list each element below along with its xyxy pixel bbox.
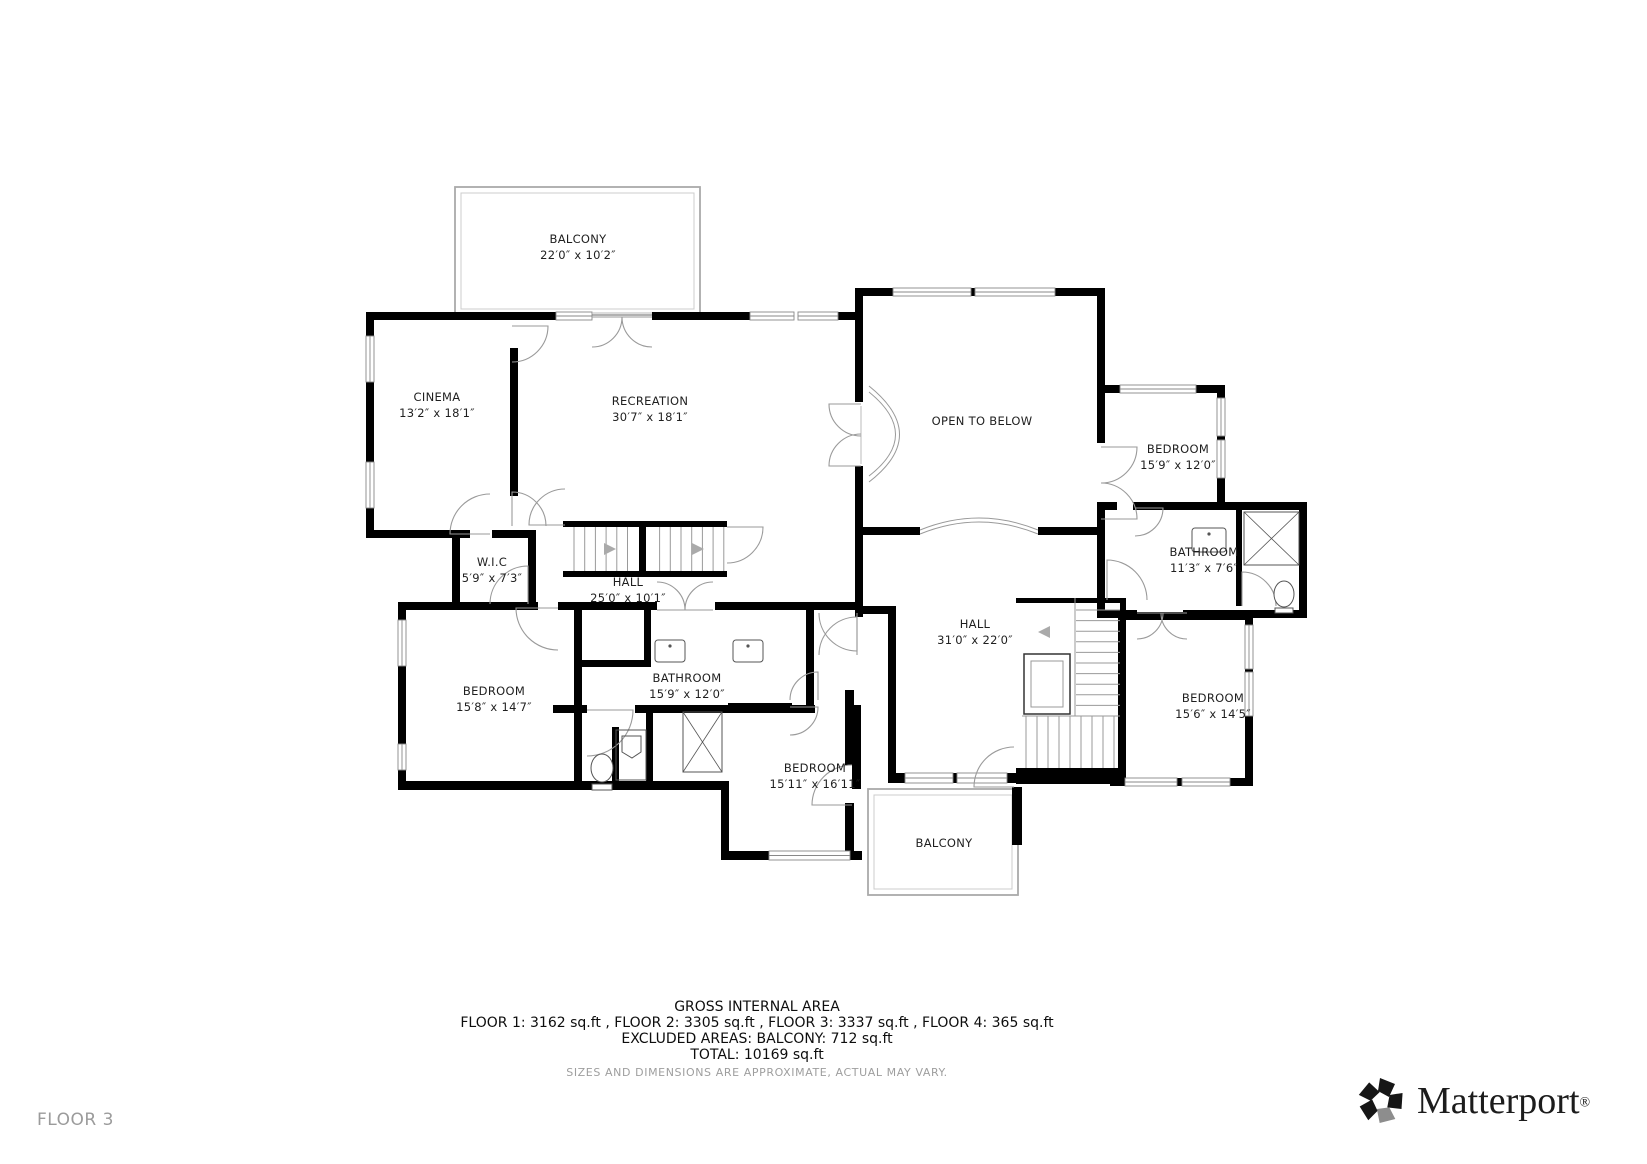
wall-opening-lines: [592, 313, 861, 464]
room-dims-bedroom-top-right: 15′9″ x 12′0″: [1140, 458, 1216, 472]
footer-total-area: TOTAL: 10169 sq.ft: [267, 1047, 1247, 1063]
room-label-bathroom-top-right: BATHROOM: [1170, 545, 1239, 559]
room-label-hall-upper: HALL: [613, 575, 644, 589]
floor-page-label: FLOOR 3: [37, 1110, 114, 1130]
gross-internal-area-footer: GROSS INTERNAL AREA FLOOR 1: 3162 sq.ft …: [267, 999, 1247, 1081]
room-dims-wic: 5′9″ x 7′3″: [462, 571, 523, 585]
matterport-pinwheel-icon: [1354, 1074, 1408, 1128]
room-dims-bedroom-bottom: 15′11″ x 16′11″: [770, 777, 861, 791]
room-dims-cinema: 13′2″ x 18′1″: [399, 406, 475, 420]
room-dims-hall-main: 31′0″ x 22′0″: [937, 633, 1013, 647]
room-label-bathroom-center: BATHROOM: [653, 671, 722, 685]
footer-floor-areas: FLOOR 1: 3162 sq.ft , FLOOR 2: 3305 sq.f…: [267, 1015, 1247, 1031]
room-label-bedroom-bottom-right: BEDROOM: [1182, 691, 1244, 705]
room-label-cinema: CINEMA: [414, 390, 461, 404]
room-label-balcony-top: BALCONY: [550, 232, 608, 246]
matterport-logo: Matterport®: [1354, 1074, 1590, 1128]
footer-title: GROSS INTERNAL AREA: [267, 999, 1247, 1015]
room-label-wic: W.I.C: [477, 555, 507, 569]
floorplan-page: { "page": {"background": "#ffffff"}, "fl…: [0, 0, 1647, 1164]
room-label-bedroom-bottom: BEDROOM: [784, 761, 846, 775]
room-dims-balcony-top: 22′0″ x 10′2″: [540, 248, 616, 262]
room-label-bedroom-top-right: BEDROOM: [1147, 442, 1209, 456]
room-dims-bedroom-left: 15′8″ x 14′7″: [456, 700, 532, 714]
room-label-recreation: RECREATION: [612, 394, 689, 408]
room-label-bedroom-left: BEDROOM: [463, 684, 525, 698]
room-dims-bedroom-bottom-right: 15′6″ x 14′5″: [1175, 707, 1251, 721]
arch-and-bay-curves: [869, 386, 1038, 534]
room-dims-bathroom-top-right: 11′3″ x 7′6″: [1170, 561, 1239, 575]
floor-plan-canvas: BALCONY22′0″ x 10′2″CINEMA13′2″ x 18′1″R…: [0, 0, 1647, 1164]
room-label-hall-main: HALL: [960, 617, 991, 631]
room-dims-hall-upper: 25′0″ x 10′1″: [590, 591, 666, 605]
room-dims-recreation: 30′7″ x 18′1″: [612, 410, 688, 424]
room-label-balcony-bottom: BALCONY: [916, 836, 974, 850]
matterport-wordmark: Matterport®: [1417, 1079, 1590, 1123]
room-dims-bathroom-center: 15′9″ x 12′0″: [649, 687, 725, 701]
footer-excluded-areas: EXCLUDED AREAS: BALCONY: 712 sq.ft: [267, 1031, 1247, 1047]
footer-disclaimer: SIZES AND DIMENSIONS ARE APPROXIMATE, AC…: [267, 1065, 1247, 1081]
room-label-open-to-below: OPEN TO BELOW: [932, 414, 1033, 428]
